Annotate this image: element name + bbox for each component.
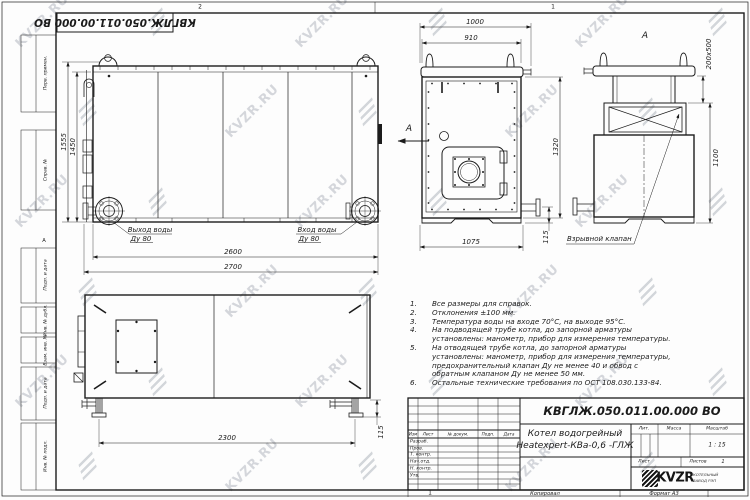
lit-label: Лит. <box>639 427 650 432</box>
inlet-dn: Ду 80 <box>299 235 320 243</box>
note-number: 5. <box>410 344 432 353</box>
kvzr-logo-text: KVZR <box>656 471 694 486</box>
drawing-linework <box>0 0 750 500</box>
view-a <box>566 53 713 244</box>
row-tkontr: Т. контр. <box>410 453 431 458</box>
dim-115-bottom: 115 <box>377 425 385 438</box>
note-item: 5.На отводящей трубе котла, до запорной … <box>410 344 682 379</box>
company-name-line1: КОТЕЛЬНЫЙ <box>693 472 718 477</box>
zone-top-right: 1 <box>551 4 555 11</box>
dim-1075: 1075 <box>462 238 480 246</box>
margin-label-sprav-no: Справ. № <box>44 159 49 181</box>
footer-copy: Копировал <box>530 491 560 497</box>
dim-115-side: 115 <box>542 230 550 243</box>
dim-height-body: 1450 <box>69 138 77 156</box>
col-data: Дата <box>504 432 515 437</box>
product-name-line1: Котел водогрейный <box>528 429 623 439</box>
view-arrow-label: А <box>406 124 412 134</box>
dim-1320: 1320 <box>552 138 560 156</box>
note-number: 4. <box>410 326 432 335</box>
dim-1000: 1000 <box>466 18 484 26</box>
margin-label-perv-primen: Перв. примен. <box>44 56 49 91</box>
stamp-doc-number: КВГЛЖ.050.011.00.000 ВО <box>34 16 196 28</box>
dim-width-body: 2600 <box>224 248 242 256</box>
margin-label-inv-dubl: Инв. № дубл. <box>44 304 49 335</box>
dim-flue-200x500: 200x500 <box>705 39 713 70</box>
footer-format: Формат А3 <box>649 491 679 497</box>
note-text: На отводящей трубе котла, до запорной ар… <box>432 344 676 379</box>
scale-label: Масштаб <box>706 427 728 432</box>
company-name-line2: ЗАВОД РЭП <box>693 478 716 483</box>
row-razrab: Разраб. <box>410 440 428 445</box>
zone-row-letter: А <box>42 238 46 244</box>
col-list: Лист <box>423 432 434 437</box>
col-doc: № докум. <box>448 432 469 437</box>
row-utv: Утв. <box>410 473 420 478</box>
sheets-value: 1 <box>721 459 724 465</box>
drawing-sheet: KVZR.RUKVZR.RUKVZR.RUKVZR.RUKVZR.RUKVZR.… <box>0 0 750 500</box>
note-item: 4.На подводящей трубе котла, до запорной… <box>410 326 682 344</box>
row-nkontr: Н. контр. <box>410 466 432 471</box>
sheets-label: Листов <box>689 460 706 465</box>
scale-value: 1 : 15 <box>708 442 725 449</box>
margin-label-vzam-inv: Взам. инв. № <box>44 334 49 365</box>
sheet-label: Лист <box>638 460 650 465</box>
note-text: На подводящей трубе котла, до запорной а… <box>432 326 676 344</box>
row-nachotd: Нач.отд. <box>410 459 431 464</box>
inlet-label: Вход воды <box>297 226 336 234</box>
mass-label: Масса <box>667 427 682 432</box>
bottom-view <box>74 295 381 447</box>
note-item: 6.Остальные технические требования по ОС… <box>410 379 682 388</box>
technical-notes: 1.Все размеры для справок. 2.Отклонения … <box>410 300 682 388</box>
dim-910: 910 <box>464 34 477 42</box>
view-a-label: А <box>642 31 648 41</box>
col-podp: Подп. <box>482 432 495 437</box>
row-prov: Пров. <box>410 447 423 452</box>
note-number: 6. <box>410 379 432 388</box>
zone-top-left: 2 <box>198 4 202 11</box>
margin-label-podp-data-1: Подп. и дата <box>44 259 49 290</box>
col-izm: Изм <box>409 432 418 437</box>
zone-bottom: 1 <box>428 490 432 497</box>
margin-label-podp-data-2: Подп. и дата <box>44 377 49 408</box>
front-view <box>62 55 429 275</box>
title-doc-number: КВГЛЖ.050.011.00.000 ВО <box>543 404 720 418</box>
dim-1100: 1100 <box>712 149 720 167</box>
margin-label-inv-podl: Инв. № подл. <box>44 440 49 472</box>
outlet-dn: Ду 80 <box>131 235 152 243</box>
outlet-label: Выход воды <box>128 226 173 234</box>
explosion-valve <box>604 103 686 135</box>
note-text: Остальные технические требования по ОСТ … <box>432 379 676 388</box>
burner-plate <box>442 147 507 199</box>
dim-width-total: 2700 <box>224 263 242 271</box>
side-view <box>420 23 563 251</box>
dim-height-total: 1555 <box>60 133 68 151</box>
explosion-valve-callout: Взрывной клапан <box>567 235 632 243</box>
dim-2300: 2300 <box>218 434 236 442</box>
product-name-line2: Heatexpert-КВа-0,6 -ГЛЖ <box>516 441 633 451</box>
